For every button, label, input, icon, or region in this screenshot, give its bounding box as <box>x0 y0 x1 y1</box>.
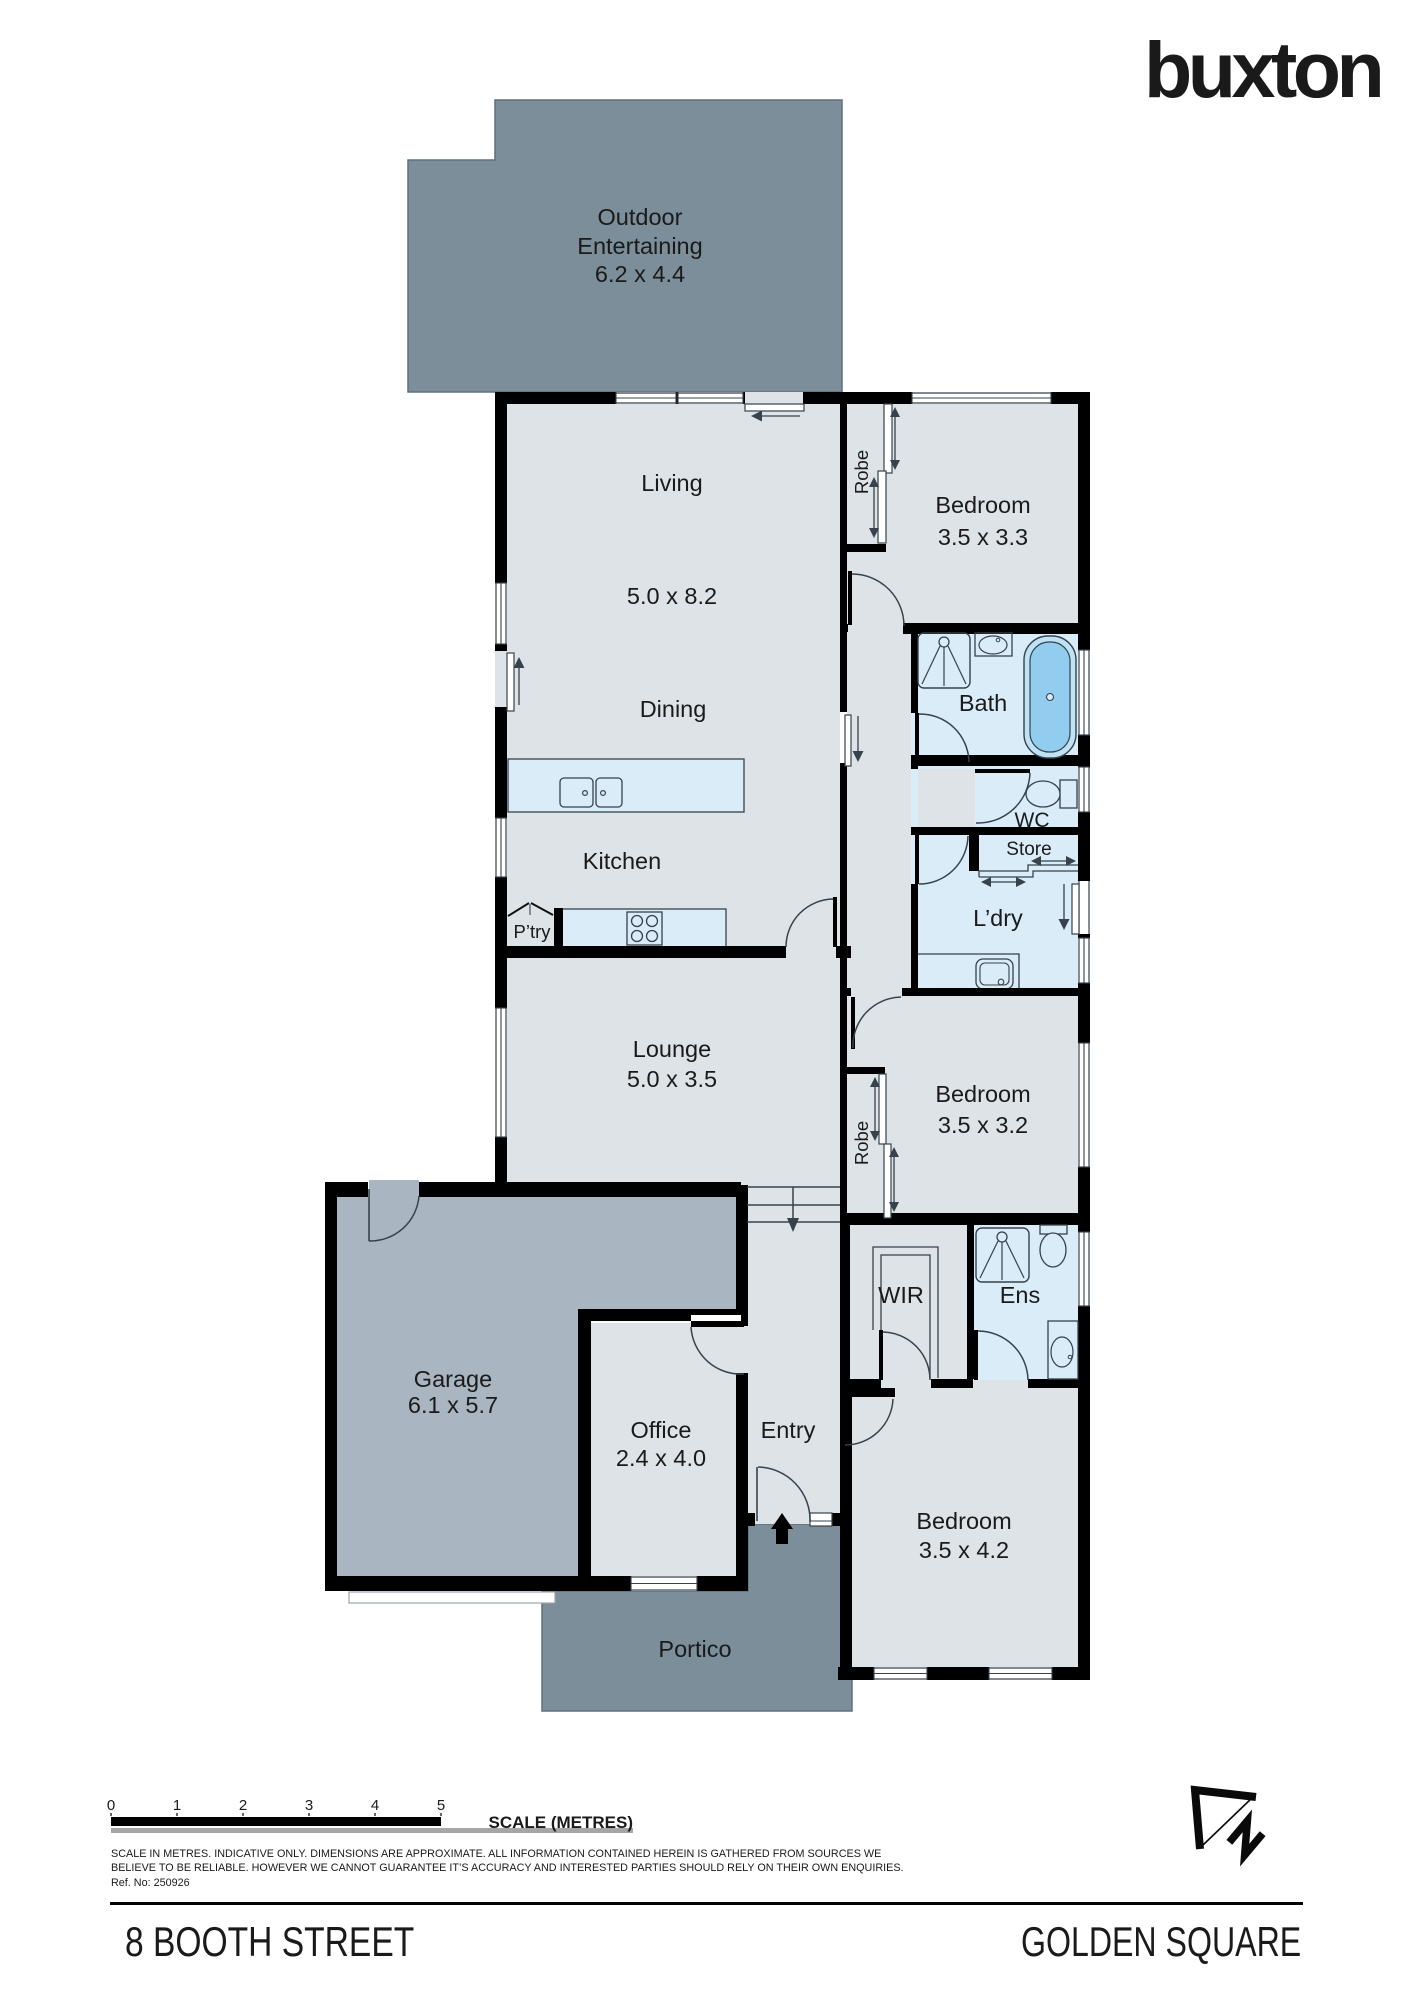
svg-text:SCALE (METRES): SCALE (METRES) <box>489 1813 634 1832</box>
svg-text:3.5 x 3.2: 3.5 x 3.2 <box>938 1112 1028 1138</box>
svg-text:5: 5 <box>437 1797 445 1814</box>
svg-text:8 BOOTH STREET: 8 BOOTH STREET <box>125 1920 414 1966</box>
svg-text:3: 3 <box>305 1797 313 1814</box>
svg-text:Living: Living <box>641 470 702 496</box>
svg-text:Ref. No: 250926: Ref. No: 250926 <box>111 1877 190 1889</box>
svg-text:0: 0 <box>107 1797 115 1814</box>
svg-text:3.5 x 3.3: 3.5 x 3.3 <box>938 524 1028 550</box>
svg-text:P’try: P’try <box>514 921 552 942</box>
svg-text:Store: Store <box>1006 839 1051 860</box>
svg-text:GOLDEN SQUARE: GOLDEN SQUARE <box>1021 1918 1301 1965</box>
svg-text:2: 2 <box>239 1797 247 1814</box>
svg-text:5.0 x 3.5: 5.0 x 3.5 <box>627 1066 717 1092</box>
svg-text:SCALE IN METRES. INDICATIVE ON: SCALE IN METRES. INDICATIVE ONLY. DIMENS… <box>111 1848 881 1860</box>
svg-text:Lounge: Lounge <box>633 1036 711 1062</box>
svg-text:Outdoor: Outdoor <box>598 204 683 230</box>
svg-text:4: 4 <box>371 1797 379 1814</box>
svg-text:BELIEVE TO BE RELIABLE. HOWEVE: BELIEVE TO BE RELIABLE. HOWEVER WE CANNO… <box>111 1862 904 1874</box>
svg-text:2.4 x 4.0: 2.4 x 4.0 <box>616 1445 706 1471</box>
svg-text:buxton: buxton <box>1144 25 1381 114</box>
svg-text:Bedroom: Bedroom <box>916 1508 1011 1534</box>
svg-text:Portico: Portico <box>658 1636 731 1662</box>
svg-text:3.5 x 4.2: 3.5 x 4.2 <box>919 1537 1009 1563</box>
svg-text:1: 1 <box>173 1797 181 1814</box>
svg-text:L’dry: L’dry <box>973 905 1023 931</box>
svg-text:Bath: Bath <box>959 690 1007 716</box>
svg-text:Ens: Ens <box>1000 1282 1041 1308</box>
svg-text:Office: Office <box>631 1417 692 1443</box>
svg-text:Entry: Entry <box>761 1417 816 1443</box>
svg-text:6.2 x 4.4: 6.2 x 4.4 <box>595 261 685 287</box>
svg-text:Kitchen: Kitchen <box>583 848 661 874</box>
svg-text:6.1 x 5.7: 6.1 x 5.7 <box>408 1392 498 1418</box>
svg-text:WC: WC <box>1015 809 1050 832</box>
svg-text:Robe: Robe <box>851 1121 872 1165</box>
svg-text:5.0 x 8.2: 5.0 x 8.2 <box>627 583 717 609</box>
svg-text:Bedroom: Bedroom <box>935 492 1030 518</box>
svg-text:Dining: Dining <box>640 696 707 722</box>
svg-text:WIR: WIR <box>878 1282 924 1308</box>
svg-text:Robe: Robe <box>851 450 872 494</box>
svg-text:Garage: Garage <box>414 1366 492 1392</box>
svg-text:Entertaining: Entertaining <box>577 233 702 259</box>
svg-text:Bedroom: Bedroom <box>935 1081 1030 1107</box>
